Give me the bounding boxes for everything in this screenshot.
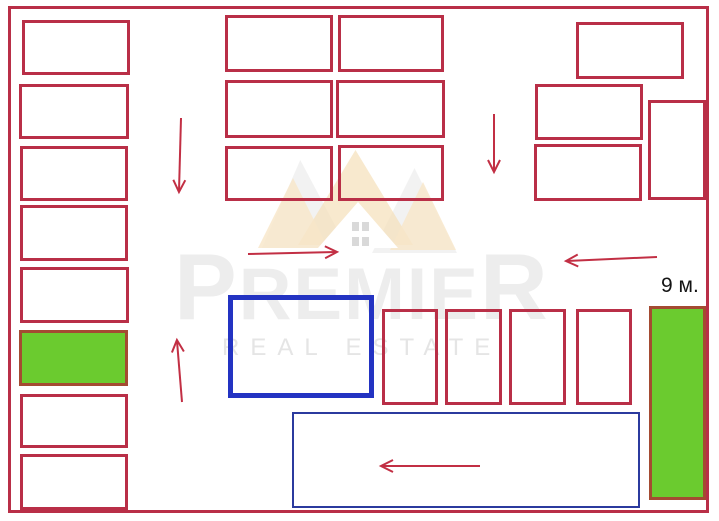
- direction-arrow: [567, 257, 657, 261]
- width-label: 9 м.: [661, 275, 699, 296]
- direction-arrow: [177, 341, 182, 402]
- floor-plan: PREMIER REAL ESTATE 9 м.: [0, 0, 719, 521]
- arrows-layer: [0, 0, 719, 521]
- direction-arrow: [179, 118, 181, 191]
- direction-arrow: [248, 252, 336, 254]
